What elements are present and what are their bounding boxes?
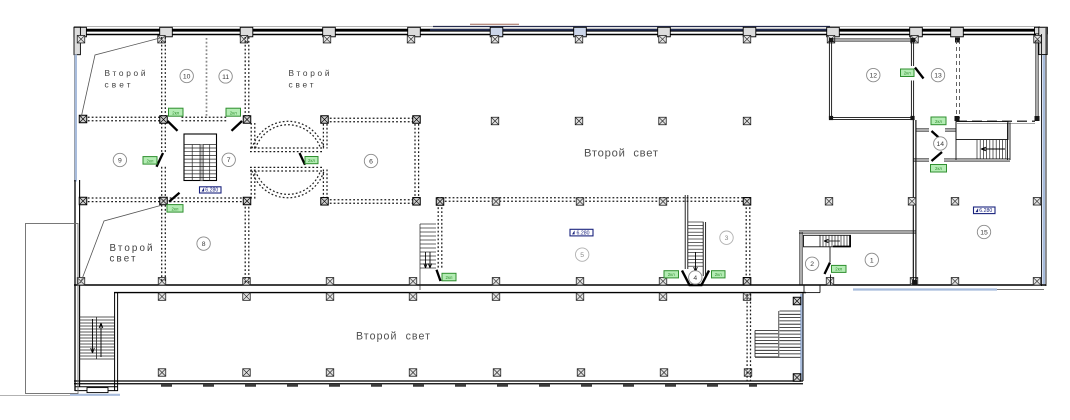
svg-text:10: 10 [183, 73, 191, 80]
svg-text:9: 9 [118, 157, 122, 164]
svg-text:2кл: 2кл [308, 158, 315, 163]
svg-text:2кл: 2кл [172, 110, 179, 115]
svg-text:7: 7 [227, 157, 231, 164]
svg-text:2кл: 2кл [715, 272, 722, 277]
svg-text:14: 14 [937, 141, 945, 148]
svg-text:2кл: 2кл [935, 119, 942, 124]
svg-text:2кл: 2кл [835, 267, 842, 272]
svg-text:2кл: 2кл [668, 272, 675, 277]
svg-text:8: 8 [202, 241, 206, 248]
svg-text:6.280: 6.280 [577, 230, 590, 236]
svg-text:6.280: 6.280 [205, 187, 218, 193]
svg-text:12: 12 [870, 73, 878, 80]
svg-text:5: 5 [580, 252, 584, 259]
svg-text:2кл: 2кл [935, 166, 942, 171]
svg-text:11: 11 [222, 74, 229, 81]
svg-text:13: 13 [934, 73, 942, 80]
svg-text:2кл: 2кл [172, 206, 179, 211]
svg-text:Второй свет: Второй свет [584, 148, 658, 160]
svg-text:6.280: 6.280 [979, 208, 992, 214]
svg-text:6: 6 [369, 158, 373, 165]
svg-text:2кл: 2кл [904, 71, 911, 76]
svg-text:15: 15 [980, 229, 988, 236]
svg-text:1: 1 [870, 257, 874, 264]
svg-text:2кл: 2кл [147, 158, 154, 163]
svg-text:2кл: 2кл [446, 275, 453, 280]
svg-text:3: 3 [725, 235, 729, 242]
svg-text:2кл: 2кл [230, 110, 237, 115]
svg-text:2: 2 [810, 261, 814, 268]
svg-text:4: 4 [693, 275, 697, 282]
svg-text:Второй свет: Второй свет [356, 331, 430, 343]
